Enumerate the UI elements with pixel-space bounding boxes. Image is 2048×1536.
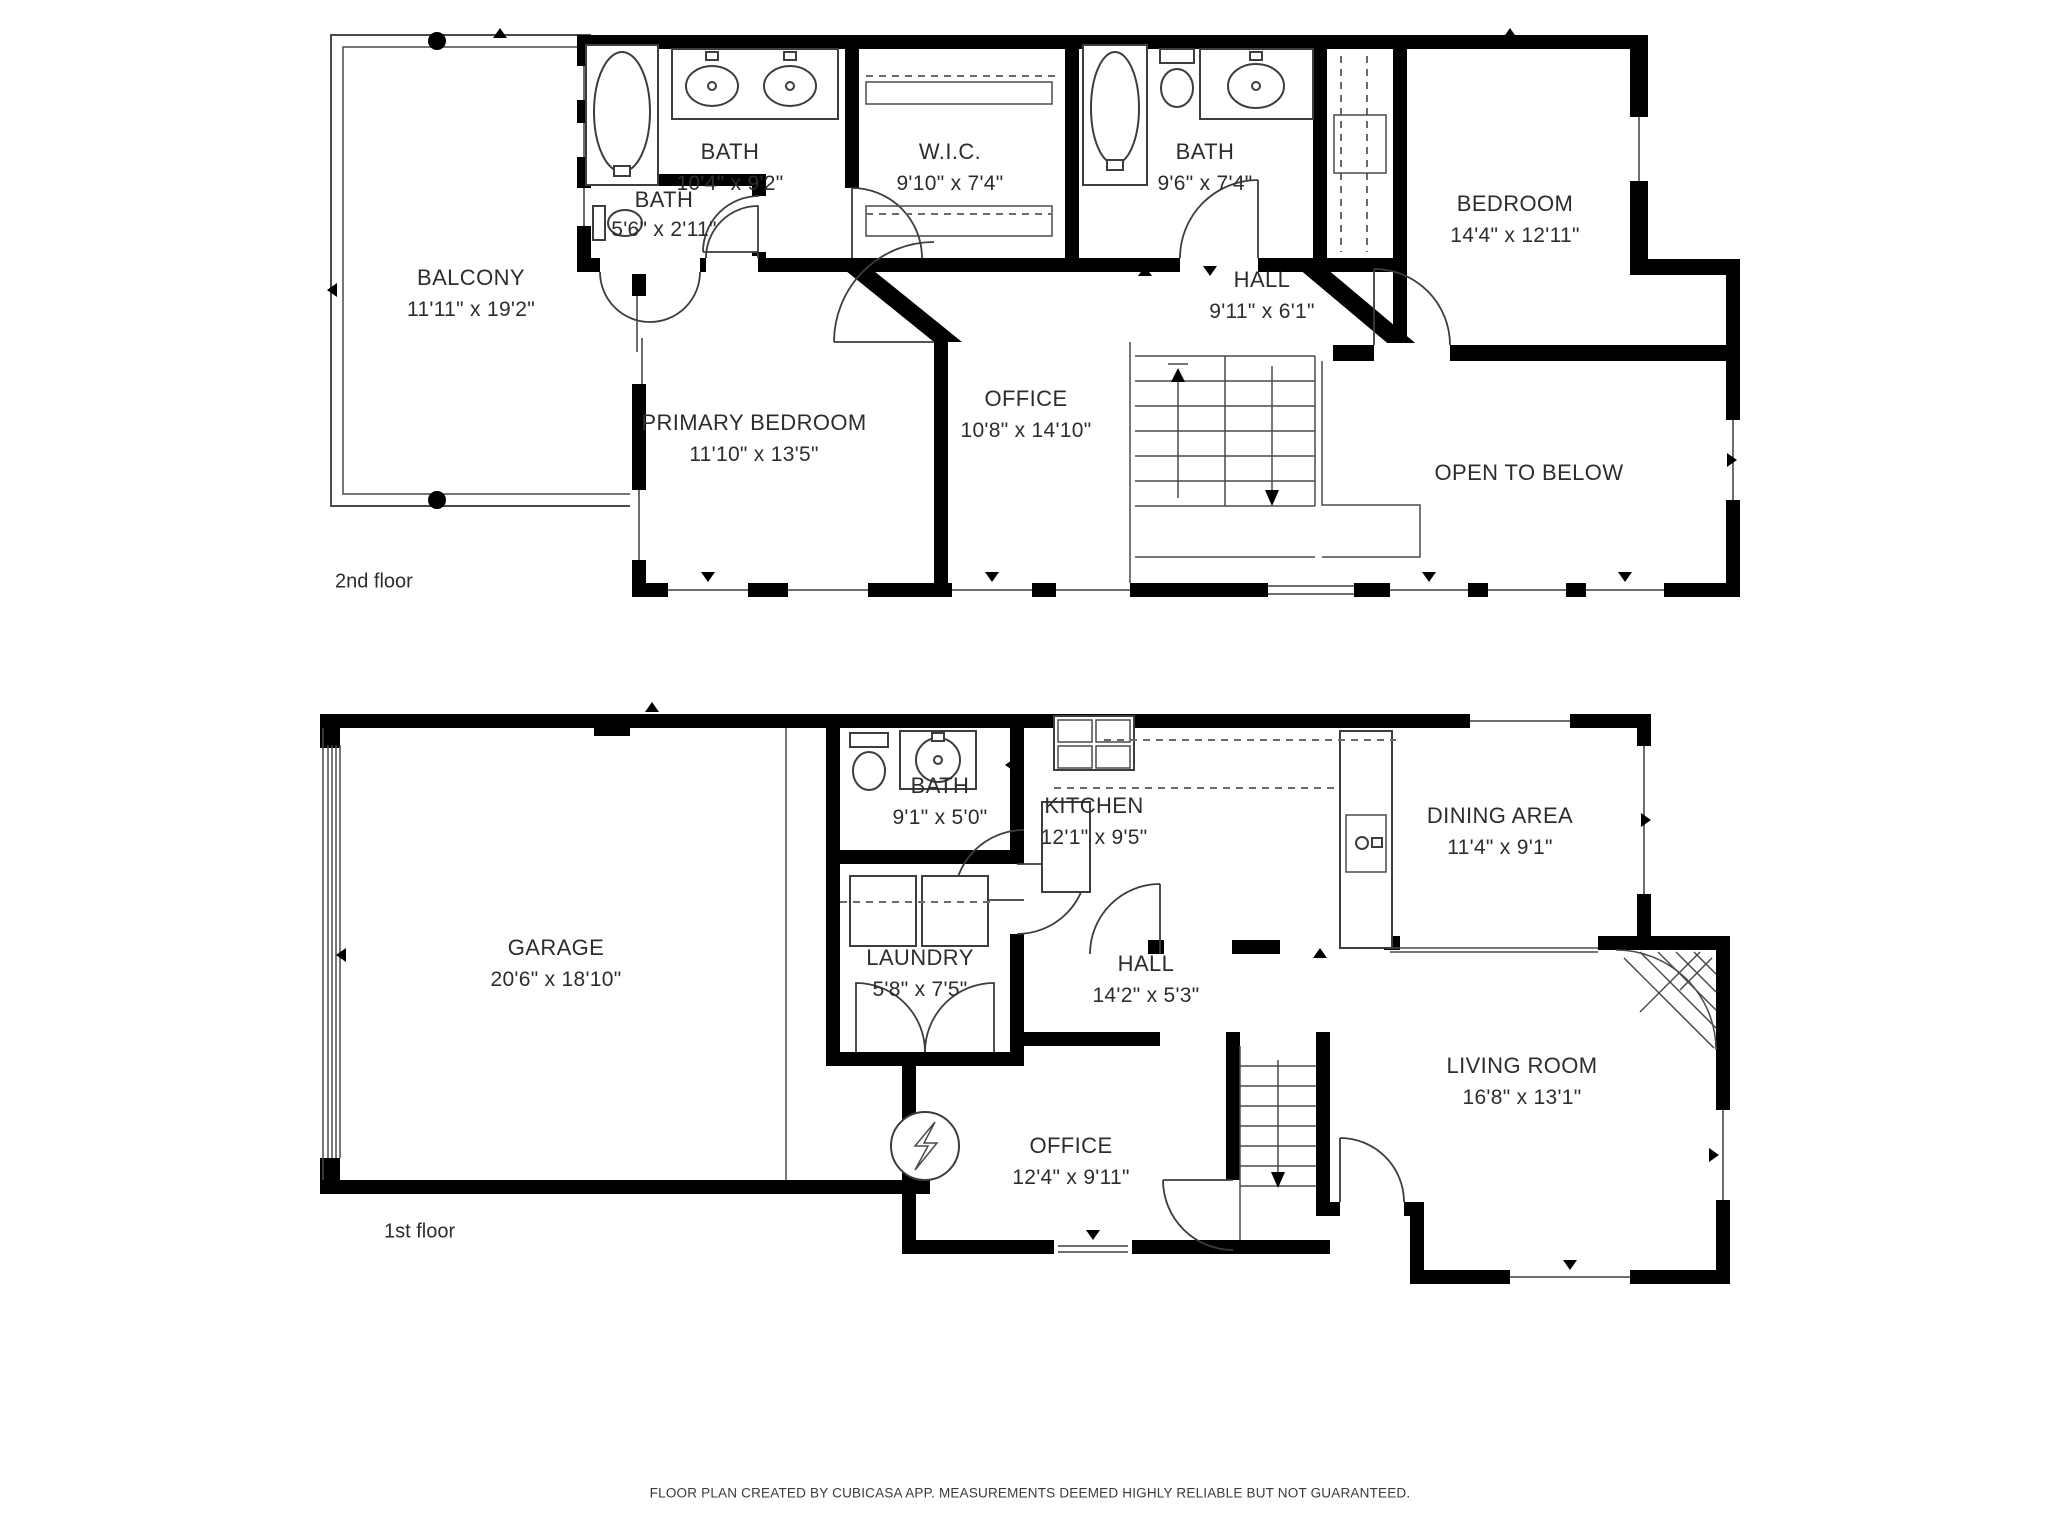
room-label-balcony: BALCONY [417, 265, 525, 291]
room-dims-small-bath: 5'6" x 2'11" [611, 218, 717, 242]
floor-plan-page: BALCONY 11'11" x 19'2" BATH 10'4" x 9'2"… [0, 0, 2048, 1536]
room-label-living-room: LIVING ROOM [1446, 1053, 1597, 1079]
room-dims-bedroom: 14'4" x 12'11" [1450, 224, 1580, 248]
room-label-bath2-2f: BATH [1176, 139, 1235, 165]
room-dims-office-2f: 10'8" x 14'10" [960, 419, 1091, 443]
room-dims-wic: 9'10" x 7'4" [896, 172, 1003, 196]
second-floor-plan [327, 28, 1742, 599]
room-dims-primary-bedroom: 11'10" x 13'5" [689, 443, 819, 467]
footer-disclaimer: FLOOR PLAN CREATED BY CUBICASA APP. MEAS… [650, 1486, 1411, 1501]
room-label-office-2f: OFFICE [984, 386, 1067, 412]
stairs-second-floor [1130, 342, 1315, 583]
room-dims-dining: 11'4" x 9'1" [1447, 836, 1553, 860]
room-dims-kitchen: 12'1" x 9'5" [1040, 826, 1147, 850]
floor-label-1st: 1st floor [384, 1221, 455, 1244]
hatch-area [1616, 950, 1716, 1050]
room-label-hall-2f: HALL [1234, 267, 1291, 293]
room-dims-hall-1f: 14'2" x 5'3" [1092, 984, 1199, 1008]
walls-first-floor [320, 714, 1730, 1284]
floor-plan-drawing [0, 0, 2048, 1536]
room-label-open-to-below: OPEN TO BELOW [1435, 460, 1624, 486]
room-label-primary-bedroom: PRIMARY BEDROOM [641, 410, 866, 436]
room-label-dining: DINING AREA [1427, 803, 1573, 829]
floor-label-2nd: 2nd floor [335, 571, 413, 594]
room-dims-bath-1f: 9'1" x 5'0" [892, 806, 987, 830]
room-label-bath-1f: BATH [911, 773, 970, 799]
room-dims-laundry: 5'8" x 7'5" [872, 978, 967, 1002]
room-label-bath-2f: BATH [701, 139, 760, 165]
room-label-garage: GARAGE [508, 935, 605, 961]
room-dims-living-room: 16'8" x 13'1" [1462, 1086, 1581, 1110]
first-floor-plan [320, 702, 1732, 1286]
room-label-bedroom: BEDROOM [1457, 191, 1573, 217]
room-label-office-1f: OFFICE [1029, 1133, 1112, 1159]
room-dims-garage: 20'6" x 18'10" [490, 968, 621, 992]
room-label-wic: W.I.C. [919, 139, 981, 165]
open-to-below-boundary [1322, 361, 1420, 557]
room-dims-bath2-2f: 9'6" x 7'4" [1157, 172, 1252, 196]
stairs-first-floor [1240, 1046, 1316, 1240]
room-dims-balcony: 11'11" x 19'2" [407, 298, 535, 322]
room-dims-hall-2f: 9'11" x 6'1" [1209, 300, 1315, 324]
room-dims-office-1f: 12'4" x 9'11" [1012, 1166, 1130, 1190]
direction-markers-second-floor [327, 28, 1737, 582]
room-label-small-bath: BATH [635, 187, 694, 213]
room-label-kitchen: KITCHEN [1044, 793, 1143, 819]
room-label-hall-1f: HALL [1118, 951, 1175, 977]
room-label-laundry: LAUNDRY [866, 945, 974, 971]
